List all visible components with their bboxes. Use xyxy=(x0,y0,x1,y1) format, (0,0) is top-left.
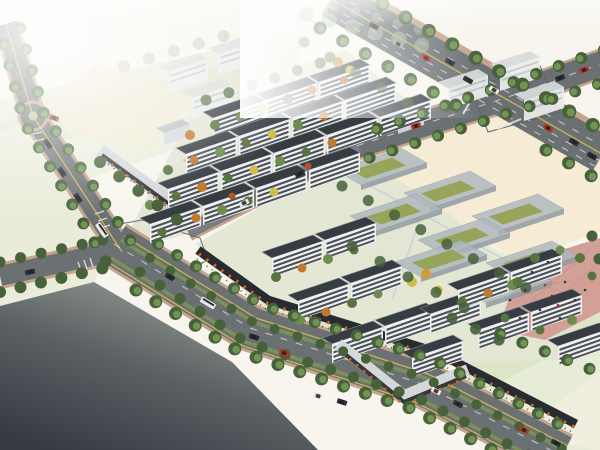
architectural-rendering xyxy=(0,0,600,450)
site-rendering-canvas xyxy=(0,0,600,450)
